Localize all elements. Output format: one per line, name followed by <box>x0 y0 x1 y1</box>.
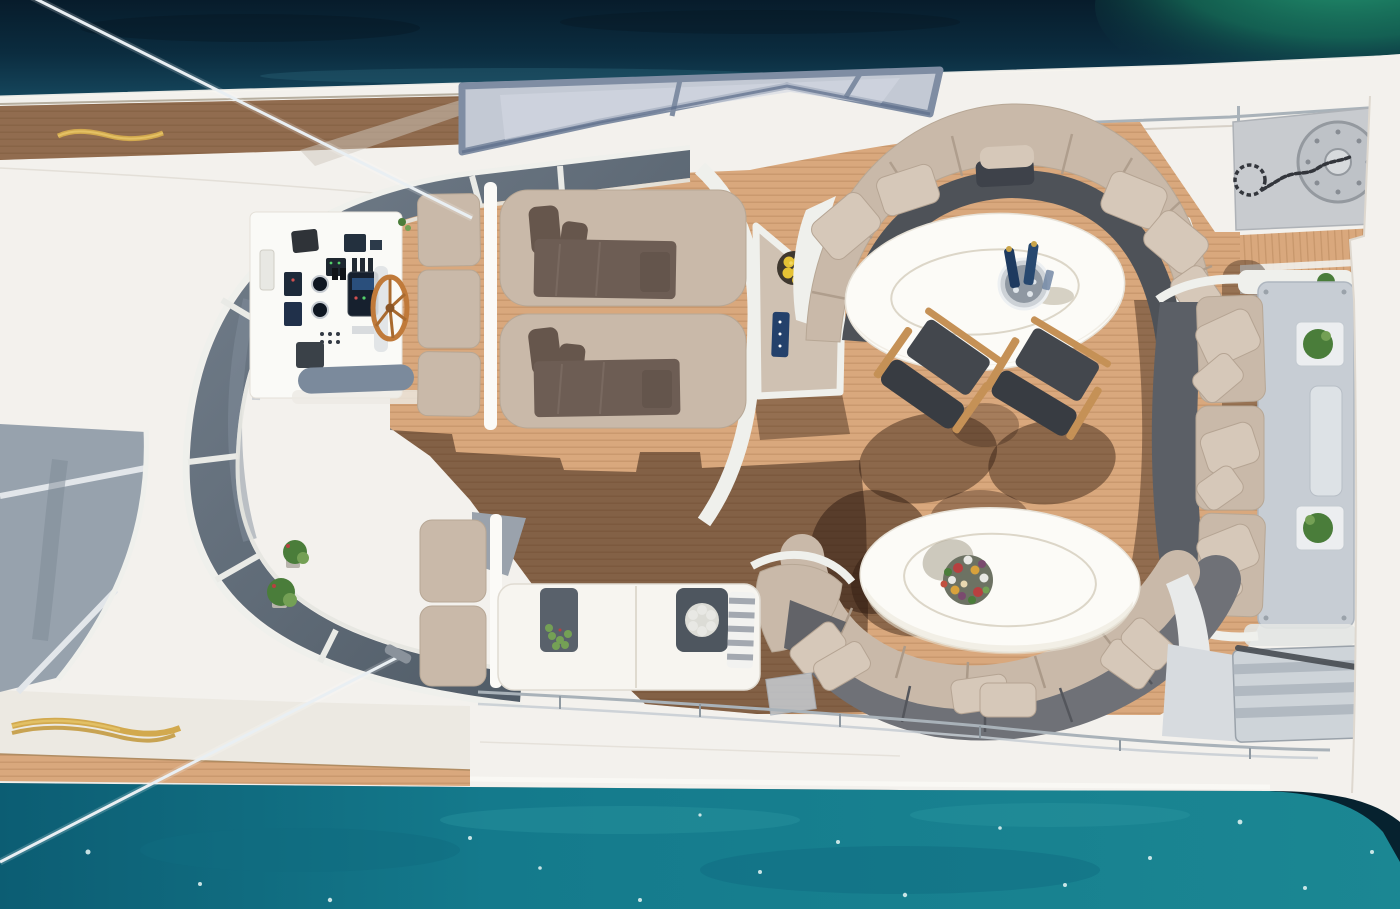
gauge-dial <box>312 276 328 292</box>
water-ripple <box>910 803 1190 827</box>
helm-console <box>250 212 422 404</box>
tray-button <box>779 333 782 336</box>
anchor-chain-platform <box>1233 108 1378 230</box>
lounger-towel-1 <box>534 239 677 299</box>
sofa-pillow <box>979 145 1034 170</box>
console-slot <box>1310 386 1342 496</box>
lounger-towel-2 <box>534 359 681 418</box>
sea-water-bottom <box>0 783 1400 909</box>
water-ripple <box>140 828 460 872</box>
corner-table-shadow <box>754 394 850 440</box>
plant-flower <box>286 544 290 548</box>
instrument-screen <box>370 240 382 250</box>
potted-plant-leaf <box>297 552 309 564</box>
nav-screen <box>284 302 302 326</box>
gauge-dial <box>312 302 328 318</box>
rail-stanchion <box>1237 106 1240 123</box>
tray-button <box>779 345 782 348</box>
bottle-cap <box>1031 241 1037 247</box>
lounger-backrest-cushions <box>417 193 480 416</box>
lemon-highlight <box>789 261 793 265</box>
wheel-hub <box>386 304 395 313</box>
planter-leaf <box>1321 331 1331 341</box>
throttle-lever <box>340 268 346 280</box>
yacht-scene <box>0 0 1400 909</box>
indicator-led <box>338 262 341 265</box>
instrument-screen <box>344 234 366 252</box>
backrest-divider <box>484 182 497 430</box>
mini-plant <box>405 225 411 231</box>
console-vent <box>260 250 274 290</box>
throttle-lever <box>332 268 338 280</box>
water-ripple <box>560 10 960 34</box>
yacht-aerial-photo <box>0 0 1400 909</box>
water-ripple <box>80 14 420 42</box>
water-ripple <box>440 806 800 834</box>
nav-screen <box>284 272 302 296</box>
striped-towel <box>727 592 756 669</box>
compass-unit <box>291 229 319 254</box>
planter-leaf <box>1305 515 1315 525</box>
plant-flower <box>272 584 276 588</box>
succulent-bloom <box>559 629 562 632</box>
helm-seat <box>298 364 415 394</box>
tray-button <box>779 321 782 324</box>
indicator-led <box>362 296 365 299</box>
indicator-led <box>291 278 294 281</box>
potted-plant-leaf <box>283 593 297 607</box>
stair-side-wedge <box>1162 644 1244 742</box>
indicator-led <box>330 262 333 265</box>
chartplotter-map <box>352 278 374 290</box>
mini-plant <box>398 218 406 226</box>
indicator-led <box>354 296 357 299</box>
console-base <box>1244 624 1356 646</box>
bench-cushion <box>420 520 486 602</box>
keypad-panel <box>296 342 324 368</box>
bottle-cap <box>1006 246 1012 252</box>
bench-cushion <box>420 606 486 686</box>
